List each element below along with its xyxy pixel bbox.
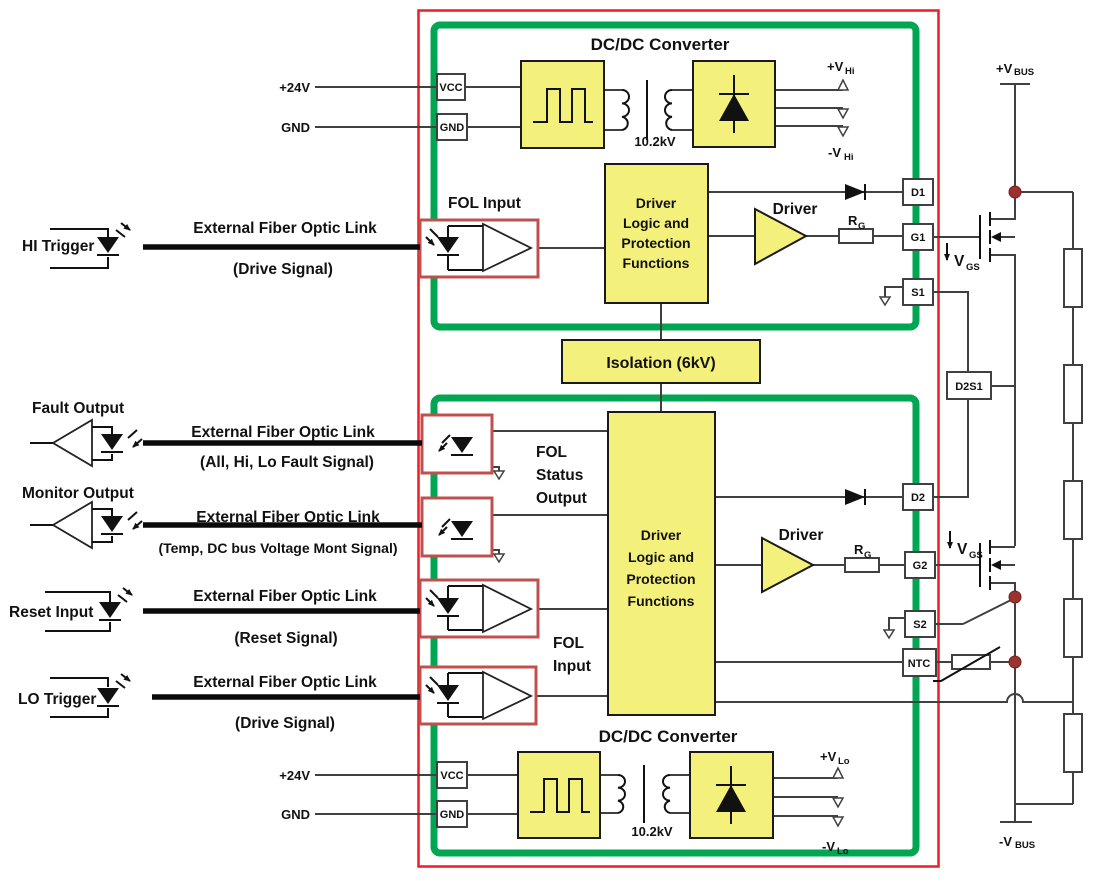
fault-output-label: Fault Output — [32, 400, 124, 417]
lower-gnd-input-label: GND — [281, 807, 310, 822]
lower-transformer — [618, 765, 670, 823]
terminal-g1-label: G1 — [911, 232, 926, 244]
link-title: External Fiber Optic Link — [193, 220, 377, 237]
s1-ground-icon — [880, 297, 890, 305]
lower-logic-line3: Protection — [626, 571, 695, 587]
vhi-pos-sub: Hi — [845, 66, 855, 77]
vhi-neg-label: -V — [828, 145, 841, 160]
upper-kv-label: 10.2kV — [634, 134, 676, 149]
terminal-d2-label: D2 — [911, 492, 925, 504]
lower-driver-label: Driver — [779, 527, 824, 544]
ntc-thermistor-icon — [933, 647, 1000, 681]
light-in-rays-icon — [128, 512, 142, 529]
fault-fol-transmitter — [422, 415, 492, 473]
power-stage-wires — [933, 84, 1073, 822]
upper-logic-line1: Driver — [636, 195, 677, 211]
lo-trigger-label: LO Trigger — [18, 691, 96, 708]
link-title: External Fiber Optic Link — [191, 424, 375, 441]
vhi-pos-label: +V — [827, 59, 844, 74]
fault-fol-ground-icon — [494, 471, 504, 479]
monitor-fol-ground-icon — [494, 554, 504, 562]
reset-fol-receiver — [420, 580, 538, 637]
d1-diode-icon — [845, 184, 865, 200]
upper-driver-logic-block — [605, 164, 708, 303]
upper-24v-label: +24V — [279, 80, 310, 95]
light-out-rays-icon — [118, 588, 132, 602]
monitor-output-label: Monitor Output — [22, 485, 134, 502]
hi-trigger-label: HI Trigger — [22, 238, 94, 255]
link-monitor-output: Monitor Output External Fiber Optic Link… — [22, 485, 422, 556]
vbus-neg-sub: BUS — [1015, 840, 1035, 851]
upper-dcdc-title: DC/DC Converter — [591, 35, 730, 54]
lower-gate-resistor — [845, 558, 879, 572]
led-icon — [99, 602, 121, 618]
led-icon — [101, 516, 123, 532]
light-in-rays-icon — [128, 430, 142, 447]
lo-fol-receiver — [420, 667, 536, 724]
vbus-pos-label: +V — [996, 61, 1013, 76]
lower-logic-line2: Logic and — [628, 549, 694, 565]
upper-pwm-block — [521, 61, 604, 148]
terminal-s2-label: S2 — [913, 619, 926, 631]
vlo-pos-sub: Lo — [838, 756, 850, 767]
fol-input-line1: FOL — [553, 635, 584, 652]
link-reset-input: Reset Input External Fiber Optic Link (R… — [9, 588, 420, 647]
receiver-amp-icon — [53, 502, 92, 548]
diagram-canvas: Driver Logic and Protection Functions Dr… — [0, 0, 1100, 883]
upper-fol-input-receiver — [420, 220, 538, 277]
terminal-g2-label: G2 — [913, 560, 928, 572]
lower-driver-amp — [762, 538, 813, 592]
vgs-label: V — [954, 253, 965, 270]
fol-status-line1: FOL — [536, 444, 567, 461]
lower-gnd-label: GND — [440, 809, 465, 821]
upper-gnd-label: GND — [440, 122, 465, 134]
upper-logic-line3: Protection — [621, 235, 690, 251]
bus-junction-dot — [1009, 186, 1021, 198]
receiver-amp-icon — [53, 420, 92, 466]
terminal-d1-label: D1 — [911, 187, 925, 199]
d2-diode-icon — [845, 489, 865, 505]
link-subtitle: (Drive Signal) — [235, 715, 335, 732]
vgs-sub: GS — [966, 262, 980, 273]
s2-ground-icon — [884, 630, 894, 638]
fol-status-line3: Output — [536, 490, 587, 507]
upper-gnd-input-label: GND — [281, 120, 310, 135]
terminal-s1-label: S1 — [911, 287, 924, 299]
link-subtitle: (Drive Signal) — [233, 261, 333, 278]
link-title: External Fiber Optic Link — [196, 509, 380, 526]
lower-vgs-annotation: V GS — [950, 531, 983, 561]
upper-rg-sub: G — [858, 221, 865, 232]
upper-logic-line2: Logic and — [623, 215, 689, 231]
vgs-label: V — [957, 541, 968, 558]
led-icon — [97, 237, 119, 253]
fol-status-line2: Status — [536, 467, 583, 484]
lower-rg-label: R — [854, 542, 864, 557]
terminal-d2s1-label: D2S1 — [955, 381, 983, 393]
light-out-rays-icon — [116, 674, 130, 688]
lower-dcdc-title: DC/DC Converter — [599, 727, 738, 746]
upper-gate-resistor — [839, 229, 873, 243]
led-icon — [97, 688, 119, 704]
vlo-neg-sub: Lo — [837, 846, 849, 857]
fol-input-line2: Input — [553, 658, 591, 675]
vlo-neg-label: -V — [822, 839, 835, 854]
isolation-label: Isolation (6kV) — [606, 355, 715, 372]
monitor-fol-transmitter — [422, 498, 492, 556]
upper-driver-label: Driver — [773, 201, 818, 218]
ntc-junction-dot — [1009, 656, 1021, 668]
link-subtitle: (All, Hi, Lo Fault Signal) — [200, 454, 374, 471]
gate-driver-block-diagram: Driver Logic and Protection Functions Dr… — [0, 0, 1100, 883]
lower-logic-line1: Driver — [641, 527, 682, 543]
vgs-sub: GS — [969, 550, 983, 561]
reset-input-label: Reset Input — [9, 604, 93, 621]
link-hi-trigger: HI Trigger External Fiber Optic Link (Dr… — [22, 220, 420, 278]
vbus-pos-sub: BUS — [1014, 67, 1034, 78]
link-title: External Fiber Optic Link — [193, 588, 377, 605]
upper-vcc-label: VCC — [439, 82, 462, 94]
lower-pwm-block — [518, 752, 600, 838]
upper-logic-line4: Functions — [623, 255, 690, 271]
upper-transformer — [622, 80, 672, 140]
source-junction-dot — [1009, 591, 1021, 603]
link-title: External Fiber Optic Link — [193, 674, 377, 691]
light-out-rays-icon — [116, 223, 130, 237]
led-icon — [101, 434, 123, 450]
vlo-pos-label: +V — [820, 749, 837, 764]
lower-logic-line4: Functions — [628, 593, 695, 609]
lower-rg-sub: G — [864, 550, 871, 561]
upper-fol-input-label: FOL Input — [448, 195, 521, 212]
lower-24v-label: +24V — [279, 768, 310, 783]
link-subtitle: (Temp, DC bus Voltage Mont Signal) — [158, 540, 397, 556]
vhi-neg-sub: Hi — [844, 152, 854, 163]
link-fault-output: Fault Output External Fiber Optic Link (… — [30, 400, 422, 471]
upper-vgs-annotation: V GS — [947, 243, 980, 273]
upper-rg-label: R — [848, 213, 858, 228]
vbus-neg-label: -V — [999, 834, 1012, 849]
lower-kv-label: 10.2kV — [631, 824, 673, 839]
terminal-ntc-label: NTC — [908, 658, 931, 670]
lower-vcc-label: VCC — [440, 770, 463, 782]
link-subtitle: (Reset Signal) — [234, 630, 337, 647]
link-lo-trigger: LO Trigger External Fiber Optic Link (Dr… — [18, 674, 420, 732]
